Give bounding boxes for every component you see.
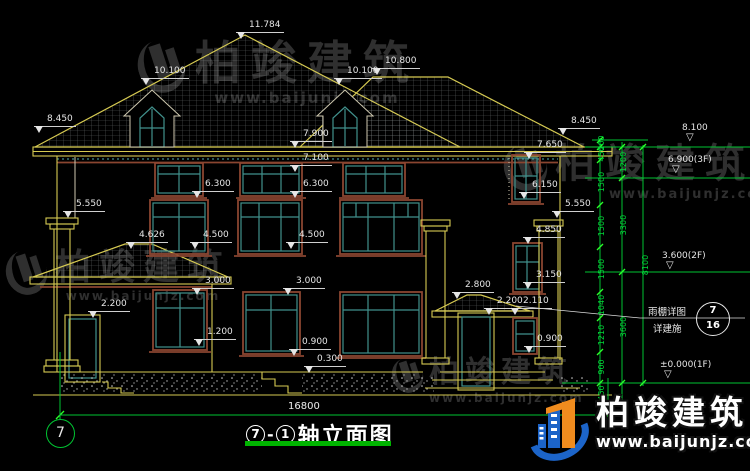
level-mark-8100: 8.100 xyxy=(678,124,712,135)
brand-logo-icon xyxy=(526,394,592,466)
elevation-mark-5550: 5.550 xyxy=(63,200,105,212)
elevation-mark-3000: 3.000 xyxy=(192,277,234,289)
elevation-mark-6300: 6.300 xyxy=(290,180,332,192)
level-mark-36002F: 3.600(2F) xyxy=(658,252,710,263)
elevation-mark-4500: 4.500 xyxy=(190,231,232,243)
elevation-mark-1200: 1.200 xyxy=(194,328,236,340)
elevation-mark-0900: 0.900 xyxy=(289,338,331,350)
elevation-mark-4626: 4.626 xyxy=(126,231,168,243)
elevation-mark-7100: 7.100 xyxy=(290,154,332,166)
chain-dimension-1200: 1200 xyxy=(620,144,628,180)
overall-dimension-16800: 16800 xyxy=(288,402,320,412)
elevation-mark-2800: 2.800 xyxy=(452,281,494,293)
chain-dimension-1500: 1500 xyxy=(598,251,606,287)
brand-url: www.baijunjz.com xyxy=(596,432,750,451)
brand-logo: 柏竣建筑 www.baijunjz.com xyxy=(526,394,750,466)
callout-detail-number: 7 xyxy=(697,303,729,318)
elevation-mark-7900: 7.900 xyxy=(290,130,332,142)
chain-dimension-8100: 8100 xyxy=(642,247,650,283)
elevation-mark-0300: 0.300 xyxy=(304,355,346,367)
elevation-mark-10800: 10.800 xyxy=(372,57,420,69)
elevation-mark-4850: 4.850 xyxy=(523,226,565,238)
elevation-mark-6300: 6.300 xyxy=(192,180,234,192)
brand-name: 柏竣建筑 xyxy=(596,394,750,432)
callout-detail-name: 雨棚详图 xyxy=(648,304,686,318)
cad-elevation-screenshot: 柏竣建筑 www.baijunjz.com 柏竣建筑 www.baijunjz.… xyxy=(0,0,750,471)
elevation-mark-11784: 11.784 xyxy=(236,21,284,33)
elevation-mark-8450: 8.450 xyxy=(34,115,76,127)
elevation-mark-5550: 5.550 xyxy=(552,200,594,212)
elevation-mark-2110: 2.110 xyxy=(510,297,552,309)
elevation-mark-3000: 3.000 xyxy=(283,277,325,289)
chain-dimension-1500: 1500 xyxy=(598,164,606,200)
callout-detail-ref: 详建施 xyxy=(653,321,682,335)
elevation-mark-2200: 2.200 xyxy=(88,300,130,312)
chain-dimension-1500: 1500 xyxy=(598,208,606,244)
elevation-mark-0900: 0.900 xyxy=(524,335,566,347)
level-mark-69003F: 6.900(3F) xyxy=(664,156,716,167)
elevation-mark-4500: 4.500 xyxy=(286,231,328,243)
elevation-mark-10100: 10.100 xyxy=(141,67,189,79)
callout-sheet-number: 16 xyxy=(697,318,729,333)
elevation-mark-3150: 3.150 xyxy=(523,271,565,283)
title-underline xyxy=(245,441,391,446)
level-mark-00001F: ±0.000(1F) xyxy=(656,361,715,372)
elevation-mark-8450: 8.450 xyxy=(558,117,600,129)
elevation-mark-7650: 7.650 xyxy=(524,141,566,153)
chain-dimension-3600: 3600 xyxy=(620,309,628,345)
elevation-mark-6150: 6.150 xyxy=(519,181,561,193)
axis-bubble-7: 7 xyxy=(46,419,75,448)
chain-dimension-1210: 1210 xyxy=(598,317,606,353)
chain-dimension-3300: 3300 xyxy=(620,207,628,243)
callout-bubble: 7 16 xyxy=(696,302,730,336)
